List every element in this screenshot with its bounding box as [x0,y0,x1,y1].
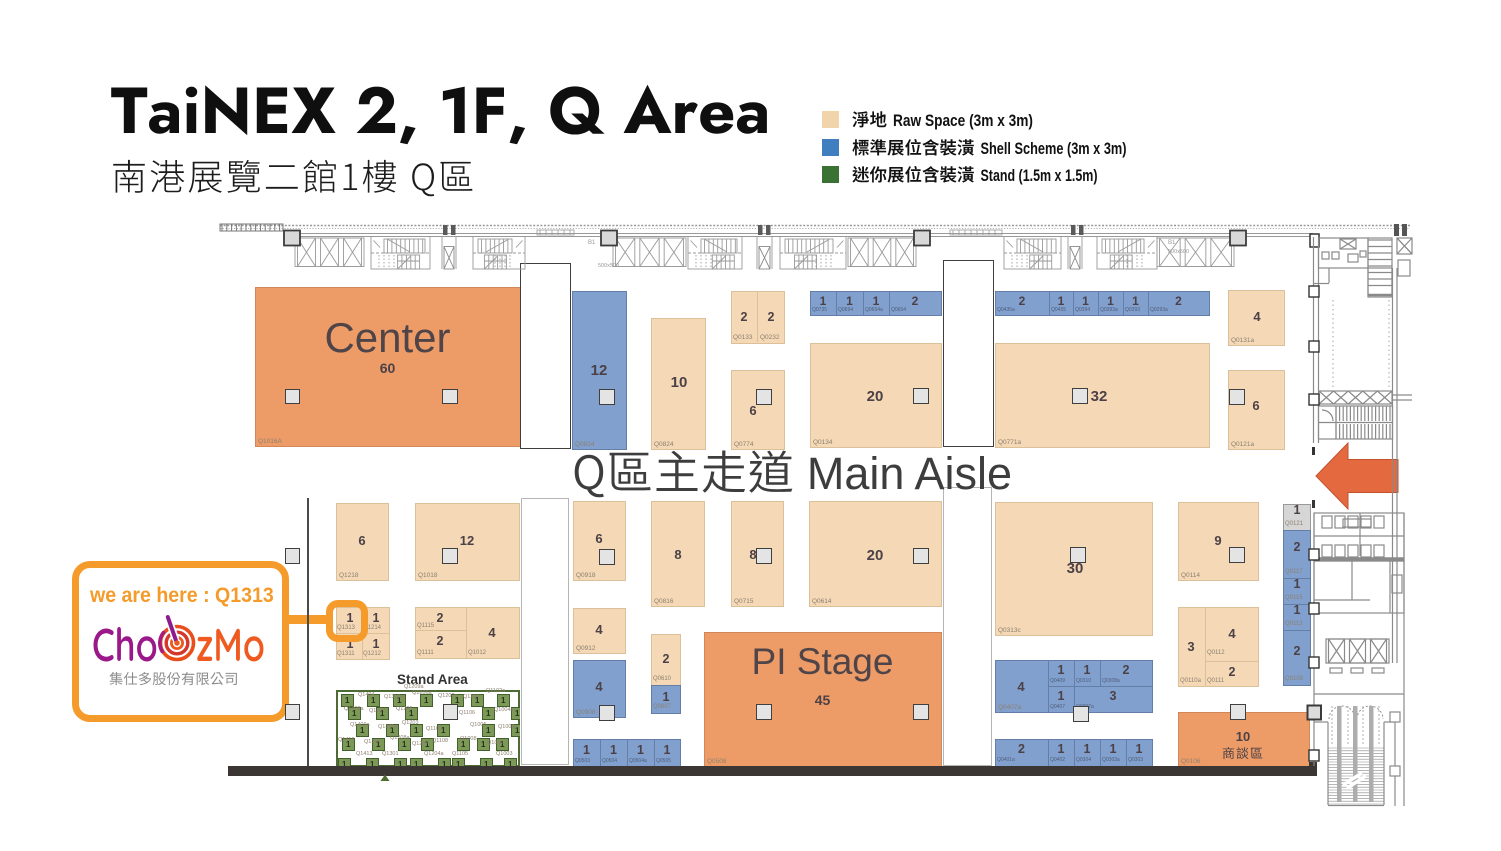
svg-text:500x500: 500x500 [598,263,619,269]
svg-text:B1: B1 [1168,240,1176,246]
svg-text:500x500: 500x500 [1168,249,1189,255]
svg-text:Shell Scheme (3m x 3m): Shell Scheme (3m x 3m) [981,140,1127,158]
svg-text:Raw Space (3m x 3m): Raw Space (3m x 3m) [893,112,1033,130]
svg-text:B1: B1 [588,240,596,246]
svg-text:Stand (1.5m x 1.5m): Stand (1.5m x 1.5m) [981,167,1098,185]
